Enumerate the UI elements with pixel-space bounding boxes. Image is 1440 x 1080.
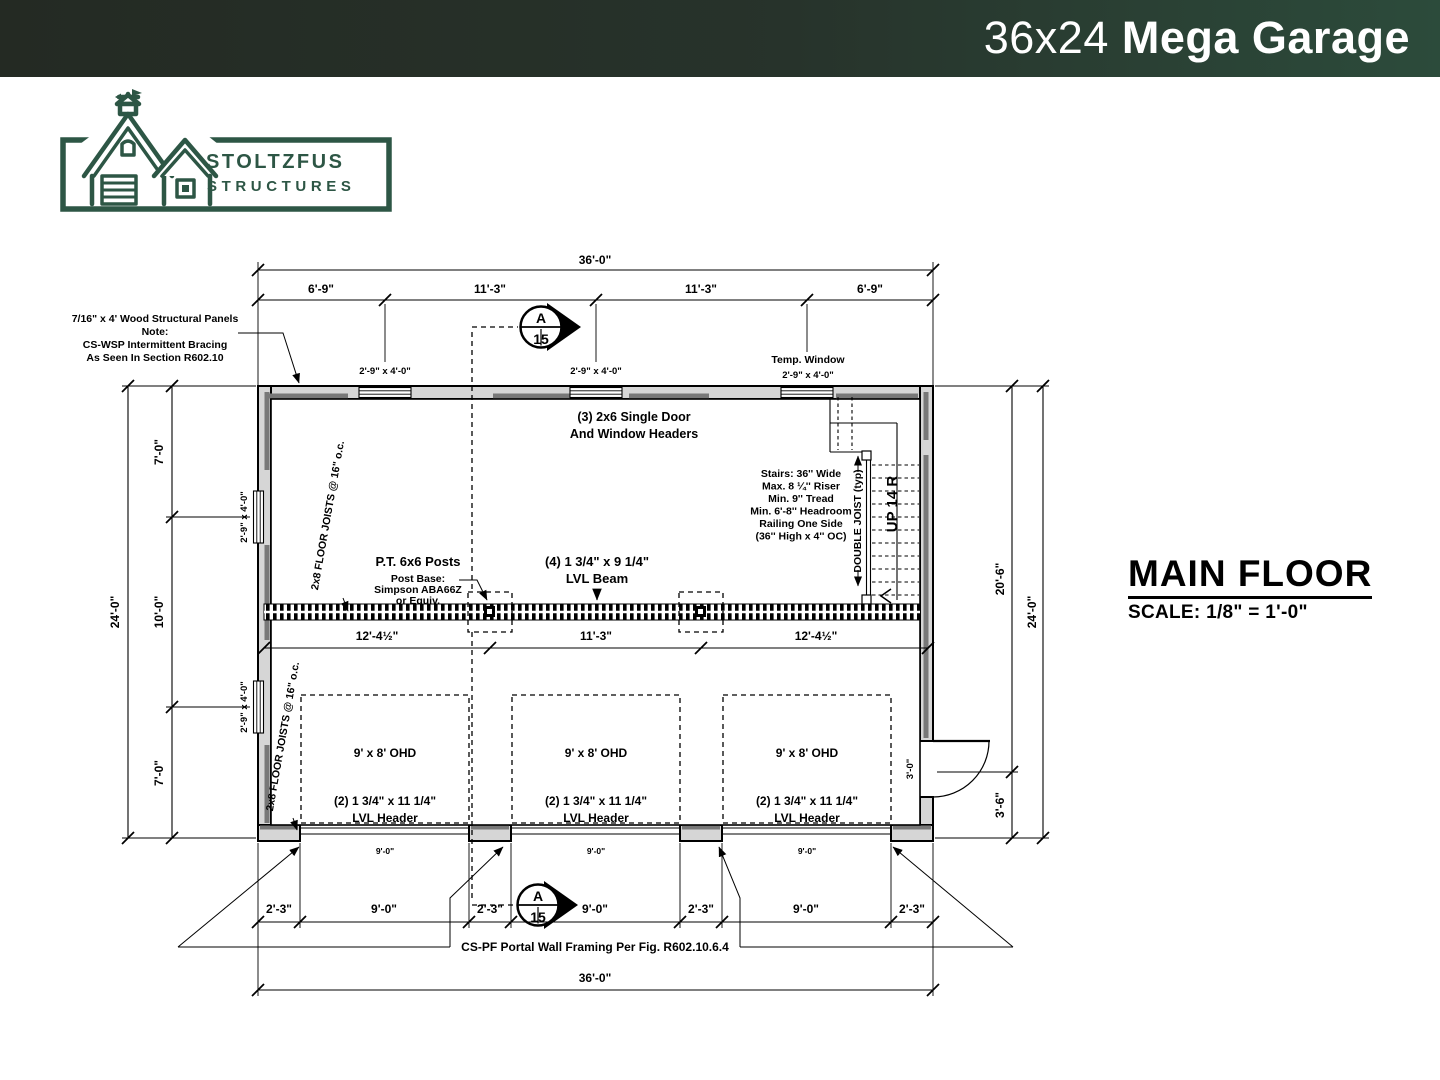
section-marker-number: 15 (530, 909, 546, 925)
dim-bottom-seg: 9'-0" (793, 902, 819, 916)
main-floor-titleblock: MAIN FLOOR SCALE: 1/8" = 1'-0" (1128, 553, 1372, 624)
page-title-name: Mega Garage (1122, 11, 1410, 62)
stairs-note-line: Railing One Side (759, 518, 843, 530)
window-size-label: 2'-9" x 4'-0" (782, 370, 834, 381)
section-marker-letter: A (536, 310, 546, 326)
lvl-header-label: LVL Header (774, 811, 840, 825)
dim-bottom-seg: 2'-3" (688, 902, 714, 916)
wsp-note-line: 7/16" x 4' Wood Structural Panels (72, 313, 239, 325)
window-left-1 (254, 491, 264, 543)
page-title-size: 36x24 (984, 11, 1109, 62)
wsp-note: 7/16" x 4' Wood Structural Panels Note: … (72, 313, 299, 383)
stairs-note-line: (36'' High x 4'' OC) (755, 531, 846, 543)
window-top-temp (781, 388, 833, 398)
dim-right-seg: 20'-6" (993, 563, 1007, 596)
dim-left-seg: 7'-0" (152, 760, 166, 786)
dim-entry-door: 3'-0" (905, 759, 916, 780)
temp-window-label: Temp. Window (771, 354, 845, 366)
dim-top-overall: 36'-0" (579, 253, 612, 267)
dim-top-seg: 6'-9" (857, 282, 883, 296)
stairs-note-line: Max. 8 ¼'' Riser (762, 481, 840, 493)
header-note-line: (3) 2x6 Single Door (577, 410, 690, 424)
dim-bottom-seg: 2'-3" (477, 902, 503, 916)
lvl-beam-size: (4) 1 3/4" x 9 1/4" (545, 554, 649, 569)
wsp-note-line: CS-WSP Intermittent Bracing (83, 339, 228, 351)
lvl-header-size: (2) 1 3/4" x 11 1/4" (545, 794, 647, 808)
dim-bottom-seg: 2'-3" (266, 902, 292, 916)
window-left-2 (254, 681, 264, 733)
dim-bottom-seg: 2'-3" (899, 902, 925, 916)
stair-direction-label: UP 14 R (884, 476, 901, 533)
dim-top-seg: 6'-9" (308, 282, 334, 296)
window-top-1 (359, 388, 411, 398)
logo-name-line1: STOLTZFUS (206, 151, 344, 173)
lvl-header-size: (2) 1 3/4" x 11 1/4" (334, 794, 436, 808)
dim-interior-seg: 12'-4½" (356, 629, 399, 643)
stairs-note-line: Min. 6'-8'' Headroom (750, 506, 851, 518)
dim-right: 20'-6" 3'-6" 24'-0" (935, 380, 1049, 844)
lvl-beam-label: LVL Beam (566, 571, 628, 586)
ohd-label: 9' x 8' OHD (776, 746, 839, 760)
portal-note-text: CS-PF Portal Wall Framing Per Fig. R602.… (461, 940, 729, 954)
door-width-label: 9'-0" (798, 846, 816, 856)
stairs-note-line: Stairs: 36'' Wide (761, 468, 841, 480)
dim-bottom: 9'-0" 9'-0" 9'-0" 2'-3" 9'-0" 2'-3" 9'-0… (252, 843, 939, 996)
stairs-note: Stairs: 36'' Wide Max. 8 ¼'' Riser Min. … (750, 468, 851, 543)
dim-bottom-seg: 9'-0" (582, 902, 608, 916)
header-bar: 36x24 Mega Garage (0, 0, 1440, 77)
section-marker-letter: A (533, 888, 543, 904)
dim-right-seg: 3'-6" (993, 792, 1007, 818)
window-size-label: 2'-9" x 4'-0" (359, 366, 411, 377)
posts-title: P.T. 6x6 Posts (375, 554, 460, 569)
page-title: 36x24 Mega Garage (984, 11, 1410, 63)
dim-interior-seg: 12'-4½" (795, 629, 838, 643)
door-width-label: 9'-0" (376, 846, 394, 856)
door-swing-arc (933, 741, 989, 797)
window-size-label: 2'-9" x 4'-0" (239, 681, 250, 733)
dim-left-overall: 24'-0" (108, 596, 122, 629)
dim-left: 24'-0" 7'-0" 10'-0" 7'-0" 2'-9" x 4'-0" … (108, 380, 256, 844)
window-size-label: 2'-9" x 4'-0" (570, 366, 622, 377)
section-marker-top: A 15 (521, 303, 582, 351)
header-note-line: And Window Headers (570, 427, 698, 441)
wsp-note-line: As Seen In Section R602.10 (86, 352, 223, 364)
window-size-label: 2'-9" x 4'-0" (239, 491, 250, 543)
lvl-header-size: (2) 1 3/4" x 11 1/4" (756, 794, 858, 808)
dim-left-seg: 7'-0" (152, 439, 166, 465)
dim-top-seg: 11'-3" (474, 282, 506, 296)
stoltzfus-structures-logo: STOLTZFUS STRUCTURES (58, 88, 398, 220)
garage-openings (300, 828, 891, 834)
plan-title: MAIN FLOOR (1128, 553, 1372, 599)
dim-left-seg: 10'-0" (152, 596, 166, 629)
barn-house-icon (80, 89, 218, 205)
lvl-header-label: LVL Header (352, 811, 418, 825)
wsp-note-line: Note: (142, 326, 169, 338)
door-width-label: 9'-0" (587, 846, 605, 856)
section-marker-number: 15 (533, 331, 549, 347)
ohd-label: 9' x 8' OHD (354, 746, 417, 760)
dim-bottom-seg: 9'-0" (371, 902, 397, 916)
dim-bottom-overall: 36'-0" (579, 971, 612, 985)
window-top-2 (570, 388, 622, 398)
stairs-note-line: Min. 9'' Tread (768, 493, 834, 505)
dim-right-overall: 24'-0" (1025, 596, 1039, 629)
lvl-header-label: LVL Header (563, 811, 629, 825)
double-joist-label: DOUBLE JOIST (typ) (852, 469, 864, 572)
portal-framing-note: CS-PF Portal Wall Framing Per Fig. R602.… (178, 847, 1013, 954)
logo-name-line2: STRUCTURES (207, 178, 356, 195)
ohd-label: 9' x 8' OHD (565, 746, 628, 760)
plan-scale: SCALE: 1/8" = 1'-0" (1128, 602, 1372, 624)
dim-top-seg: 11'-3" (685, 282, 717, 296)
posts-sub-line: or Equiv. (396, 595, 440, 607)
dim-interior-seg: 11'-3" (580, 629, 612, 643)
dim-top: 36'-0" 6'-9" 11'-3" 11'-3" 6'-9" 2'-9" x… (252, 253, 939, 386)
